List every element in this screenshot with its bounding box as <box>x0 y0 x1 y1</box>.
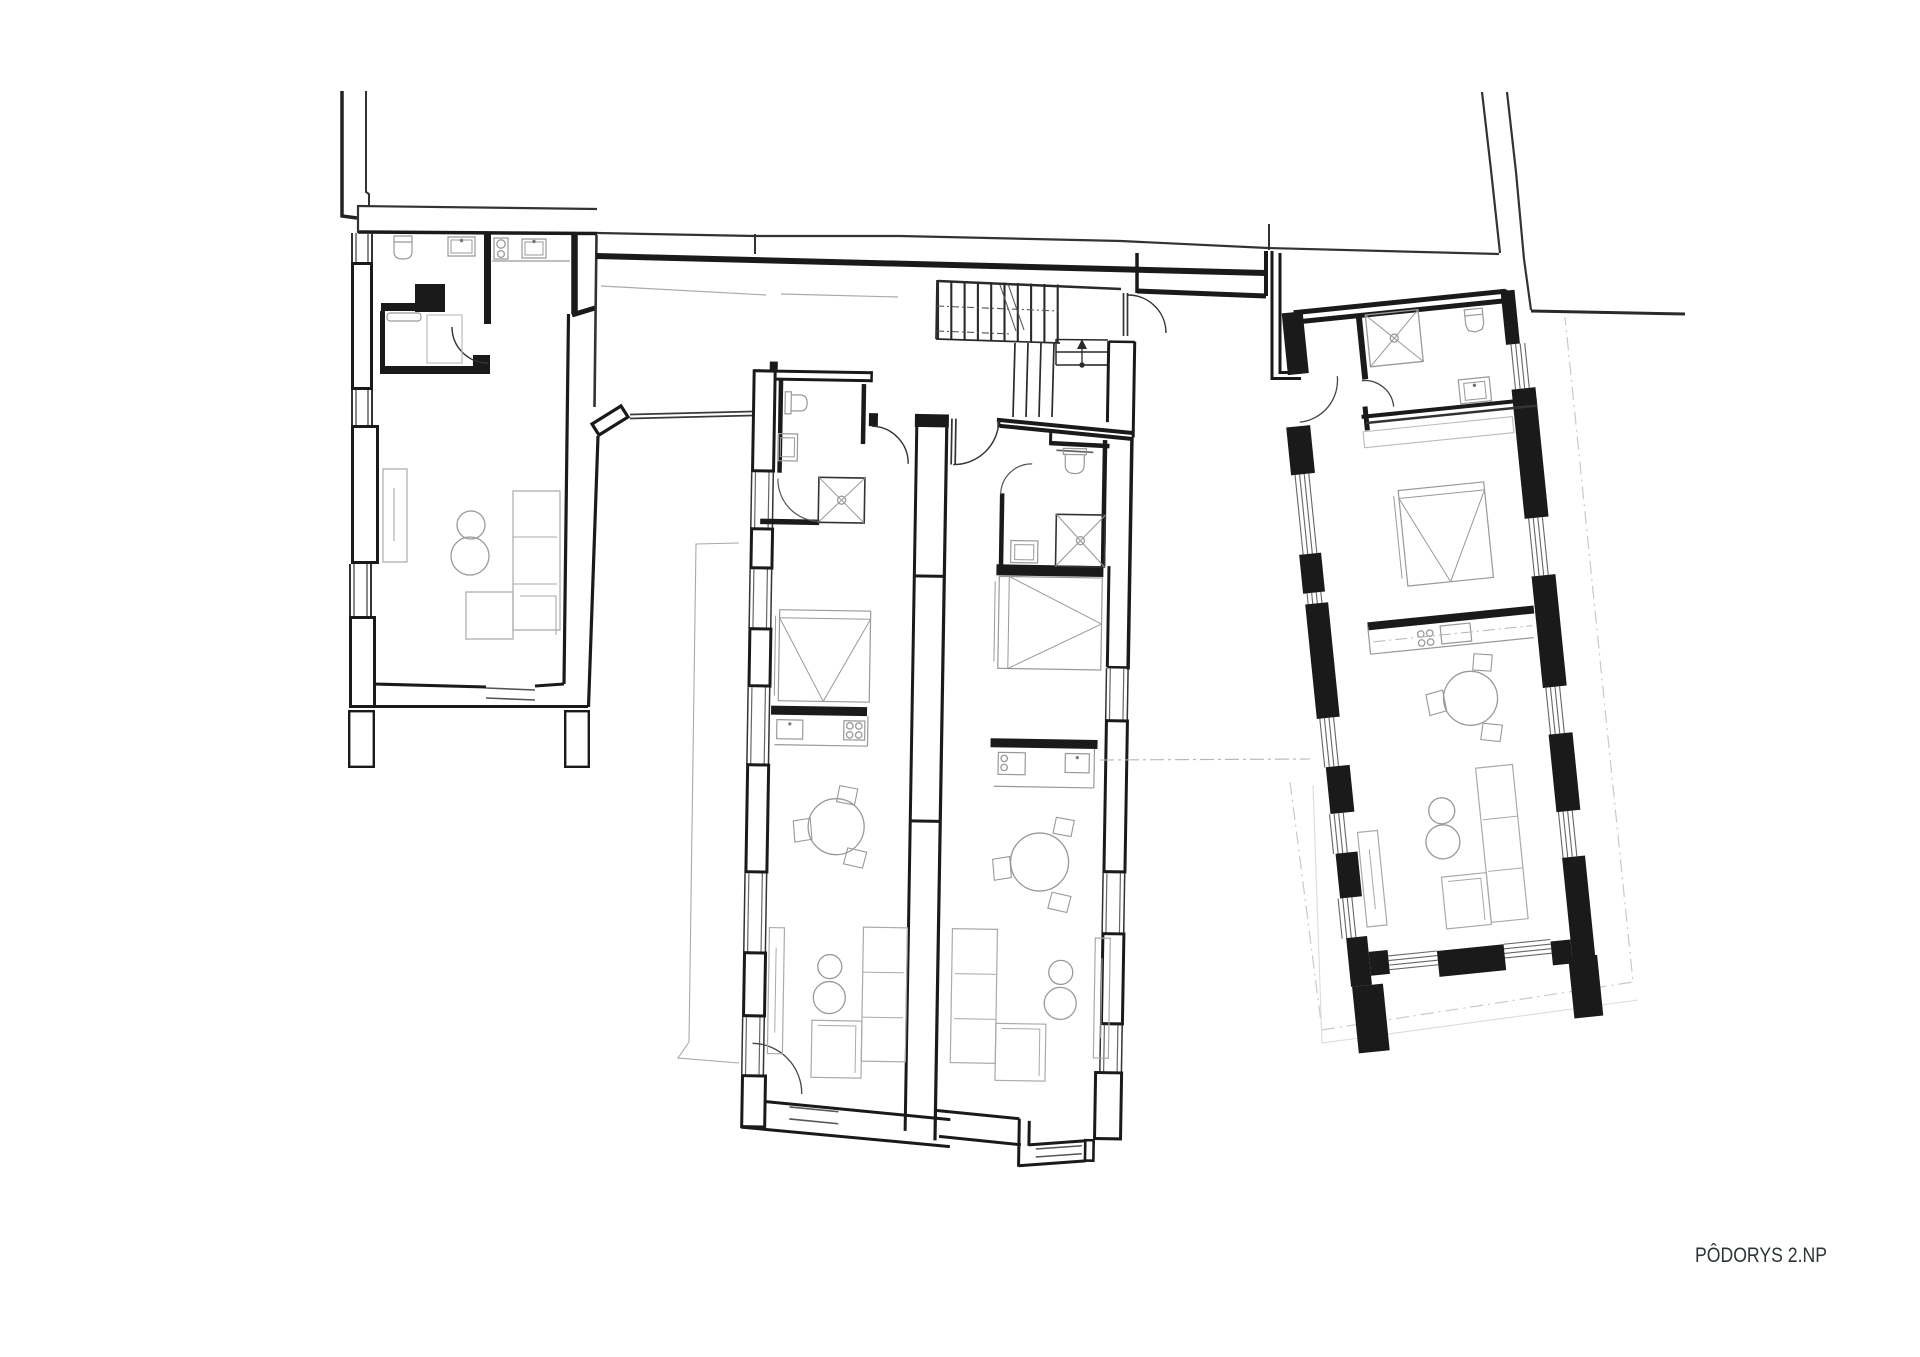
svg-text:PÔDORYS 2.NP: PÔDORYS 2.NP <box>1695 1244 1827 1267</box>
